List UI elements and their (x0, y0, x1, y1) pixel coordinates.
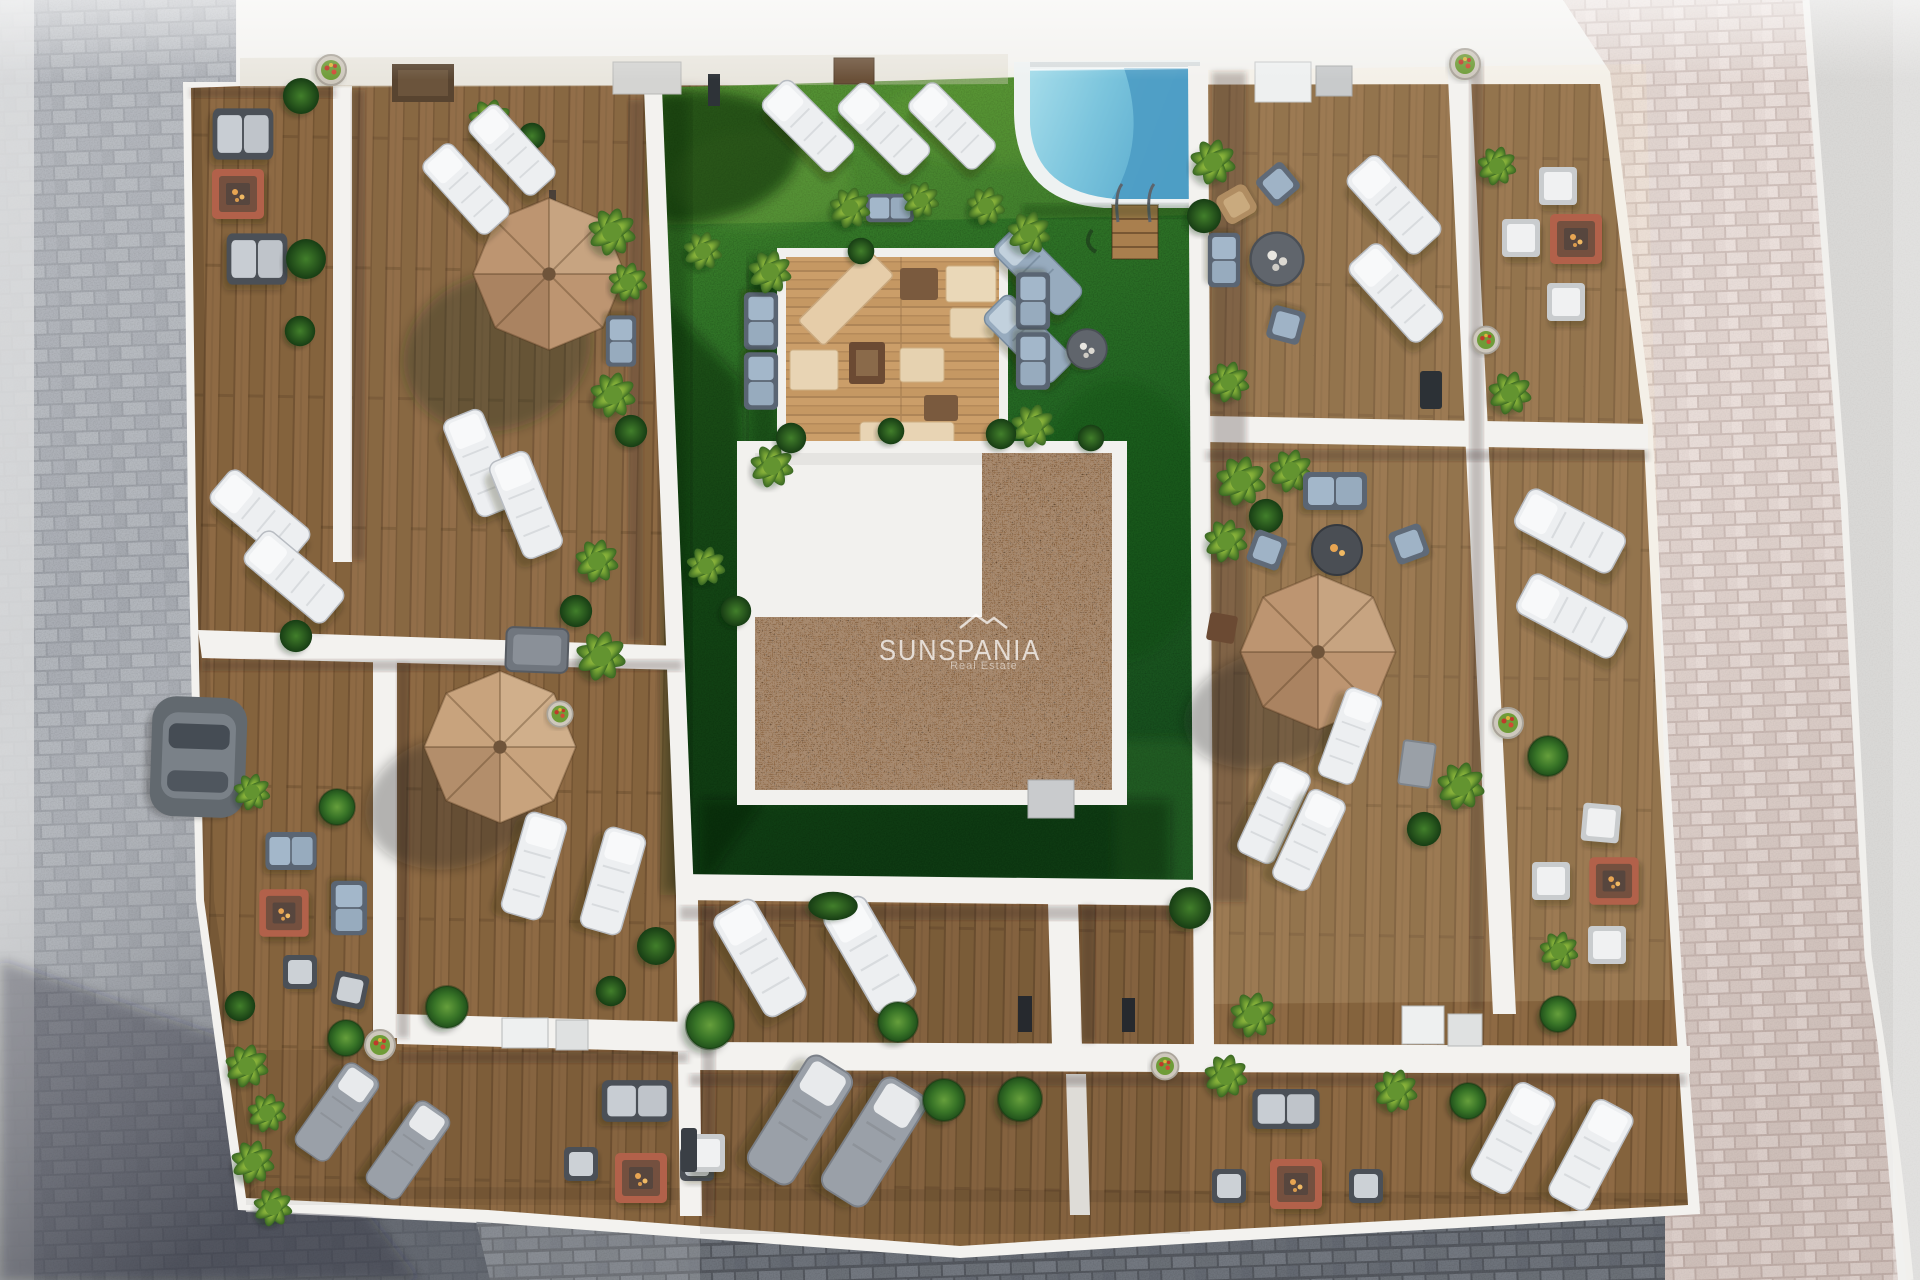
svg-text:Real Estate: Real Estate (950, 660, 1018, 672)
